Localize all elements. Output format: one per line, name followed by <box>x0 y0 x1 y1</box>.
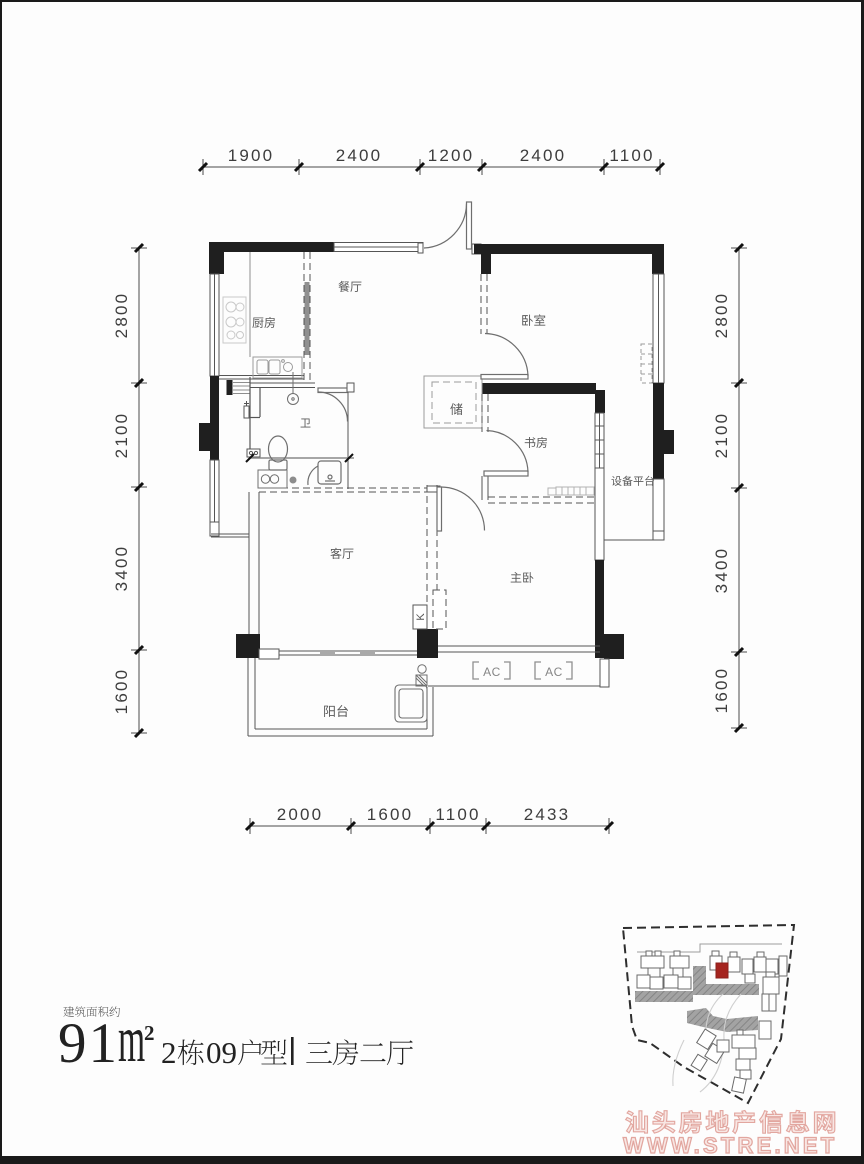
svg-text:WWW.STRE.NET: WWW.STRE.NET <box>623 1133 837 1158</box>
svg-text:1100: 1100 <box>435 805 480 824</box>
svg-text:1600: 1600 <box>112 668 131 715</box>
svg-text:2400: 2400 <box>520 146 567 165</box>
svg-text:2100: 2100 <box>712 412 731 459</box>
svg-text:K: K <box>415 613 427 621</box>
svg-text:1600: 1600 <box>367 805 414 824</box>
svg-text:2800: 2800 <box>712 292 731 339</box>
svg-text:AC: AC <box>545 665 563 679</box>
svg-text:2: 2 <box>144 1021 155 1045</box>
svg-text:3400: 3400 <box>712 547 731 594</box>
svg-text:91: 91 <box>58 1012 119 1075</box>
svg-text:3400: 3400 <box>112 545 131 592</box>
svg-text:AC: AC <box>483 665 501 679</box>
svg-text:2433: 2433 <box>524 805 571 824</box>
svg-text:09: 09 <box>206 1035 237 1070</box>
svg-text:1600: 1600 <box>712 667 731 714</box>
svg-text:2800: 2800 <box>112 292 131 339</box>
svg-text:2100: 2100 <box>112 412 131 459</box>
svg-text:2400: 2400 <box>336 146 383 165</box>
svg-text:1100: 1100 <box>609 146 654 165</box>
svg-text:2000: 2000 <box>277 805 324 824</box>
svg-text:1900: 1900 <box>228 146 275 165</box>
svg-text:m: m <box>118 1004 145 1076</box>
svg-text:2: 2 <box>161 1035 177 1070</box>
svg-text:1200: 1200 <box>428 146 475 165</box>
